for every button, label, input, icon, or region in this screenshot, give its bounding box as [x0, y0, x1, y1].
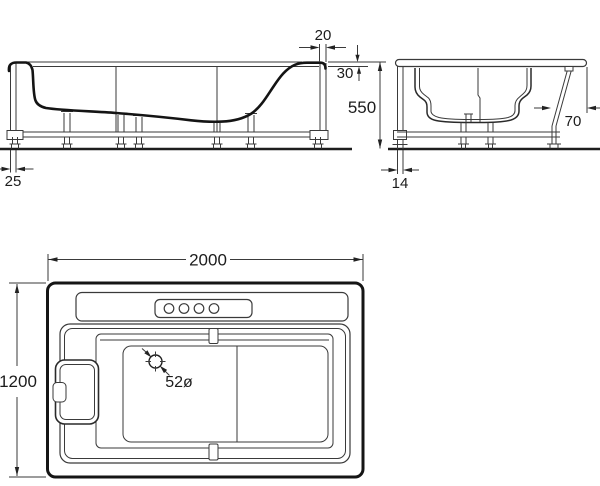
dim-rim-drop: 30: [328, 45, 368, 82]
rim-bar: [396, 60, 587, 67]
end-elevation-view: 70 14: [381, 60, 600, 193]
jet-fitting-top: [209, 329, 218, 344]
dim-label-30: 30: [337, 65, 354, 82]
side-elevation-view: 20 30 550 25: [0, 27, 386, 190]
dim-width: 1200: [0, 283, 46, 477]
base-rails: [397, 132, 560, 137]
center-supports: [461, 123, 493, 133]
frame-posts: [11, 63, 327, 137]
tub-section-inner: [420, 68, 528, 120]
waste-fitting: [464, 114, 473, 122]
jet-fitting-bottom: [209, 444, 218, 460]
dim-panel-offset: 70: [534, 67, 600, 130]
dim-length: 2000: [48, 251, 363, 282]
dim-foot-inset-side: 25: [0, 150, 34, 190]
dim-label-drain: 52ø: [165, 374, 193, 391]
dim-label-25: 25: [5, 173, 22, 190]
dim-label-14: 14: [392, 175, 409, 192]
adjustable-feet: [10, 137, 324, 149]
dim-rim-width: 20: [299, 27, 346, 62]
dim-label-550: 550: [348, 98, 376, 117]
headrest: [53, 360, 99, 424]
tub-profile: [9, 63, 326, 122]
headrest-notch: [53, 383, 66, 403]
technical-drawing-sheet: 20 30 550 25: [0, 0, 600, 486]
plan-view: 52ø 2000 1200: [0, 251, 363, 478]
base-rails: [8, 132, 328, 137]
angled-leg: [547, 68, 572, 149]
dim-foot-inset-end: 14: [381, 150, 419, 192]
dim-label-20: 20: [315, 27, 332, 44]
rim-lines: [26, 62, 319, 67]
dim-label-1200: 1200: [0, 372, 37, 391]
dim-label-70: 70: [565, 113, 582, 130]
dim-label-2000: 2000: [189, 251, 227, 270]
bathtub-dimension-drawing: 20 30 550 25: [0, 0, 600, 486]
leg-top-bracket: [565, 67, 573, 72]
tub-centerline: [478, 68, 480, 122]
adjustable-feet: [393, 137, 497, 149]
